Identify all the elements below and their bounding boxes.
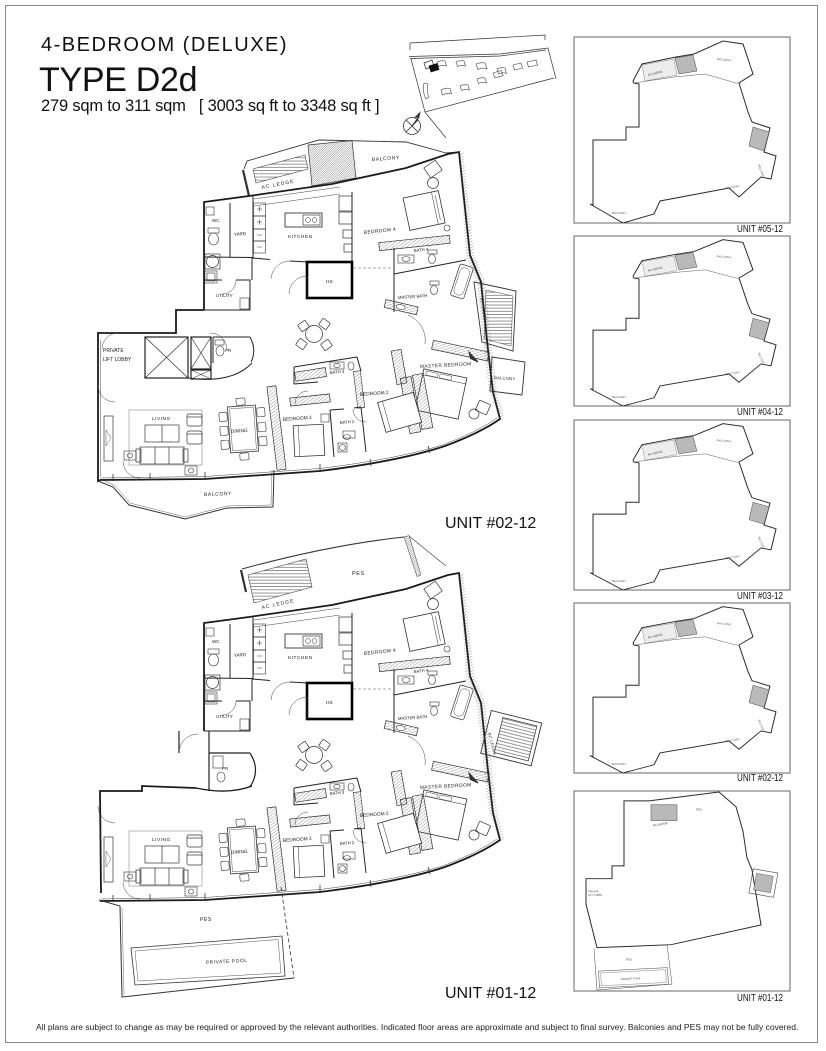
svg-text:BATH 3: BATH 3 [330, 369, 345, 375]
svg-text:PR: PR [225, 348, 232, 353]
svg-text:DINING: DINING [231, 428, 248, 435]
svg-text:BALCONY: BALCONY [204, 491, 232, 498]
svg-text:UNIT #05-12: UNIT #05-12 [737, 224, 783, 235]
svg-text:KITCHEN: KITCHEN [288, 234, 313, 240]
svg-text:BEDROOM 4: BEDROOM 4 [364, 227, 397, 236]
svg-text:UNIT #04-12: UNIT #04-12 [737, 407, 783, 418]
svg-text:MASTER BEDROOM: MASTER BEDROOM [420, 361, 472, 370]
svg-text:HS: HS [326, 279, 333, 285]
svg-text:BATH 2: BATH 2 [340, 419, 355, 425]
svg-text:WC: WC [212, 218, 220, 223]
svg-text:UTILITY: UTILITY [216, 293, 233, 298]
svg-text:PES: PES [352, 571, 365, 577]
svg-text:BATH 4: BATH 4 [414, 246, 429, 253]
svg-text:MASTER BATH: MASTER BATH [398, 293, 428, 300]
svg-text:PES: PES [200, 917, 212, 923]
svg-text:YARD: YARD [234, 231, 247, 237]
svg-text:BEDROOM 3: BEDROOM 3 [283, 415, 312, 423]
svg-text:UNIT #02-12: UNIT #02-12 [737, 773, 783, 784]
svg-text:AC LEDGE: AC LEDGE [261, 598, 295, 611]
svg-text:UNIT #03-12: UNIT #03-12 [737, 591, 783, 602]
svg-text:AC LEDGE: AC LEDGE [261, 179, 295, 191]
svg-text:LIFT LOBBY: LIFT LOBBY [103, 357, 132, 363]
svg-text:BEDROOM 2: BEDROOM 2 [360, 390, 389, 398]
svg-text:UNIT #01-12: UNIT #01-12 [737, 993, 783, 1004]
svg-text:BALCONY: BALCONY [372, 155, 401, 163]
svg-text:LIVING: LIVING [152, 416, 171, 422]
svg-text:PRIVATE: PRIVATE [103, 348, 124, 354]
